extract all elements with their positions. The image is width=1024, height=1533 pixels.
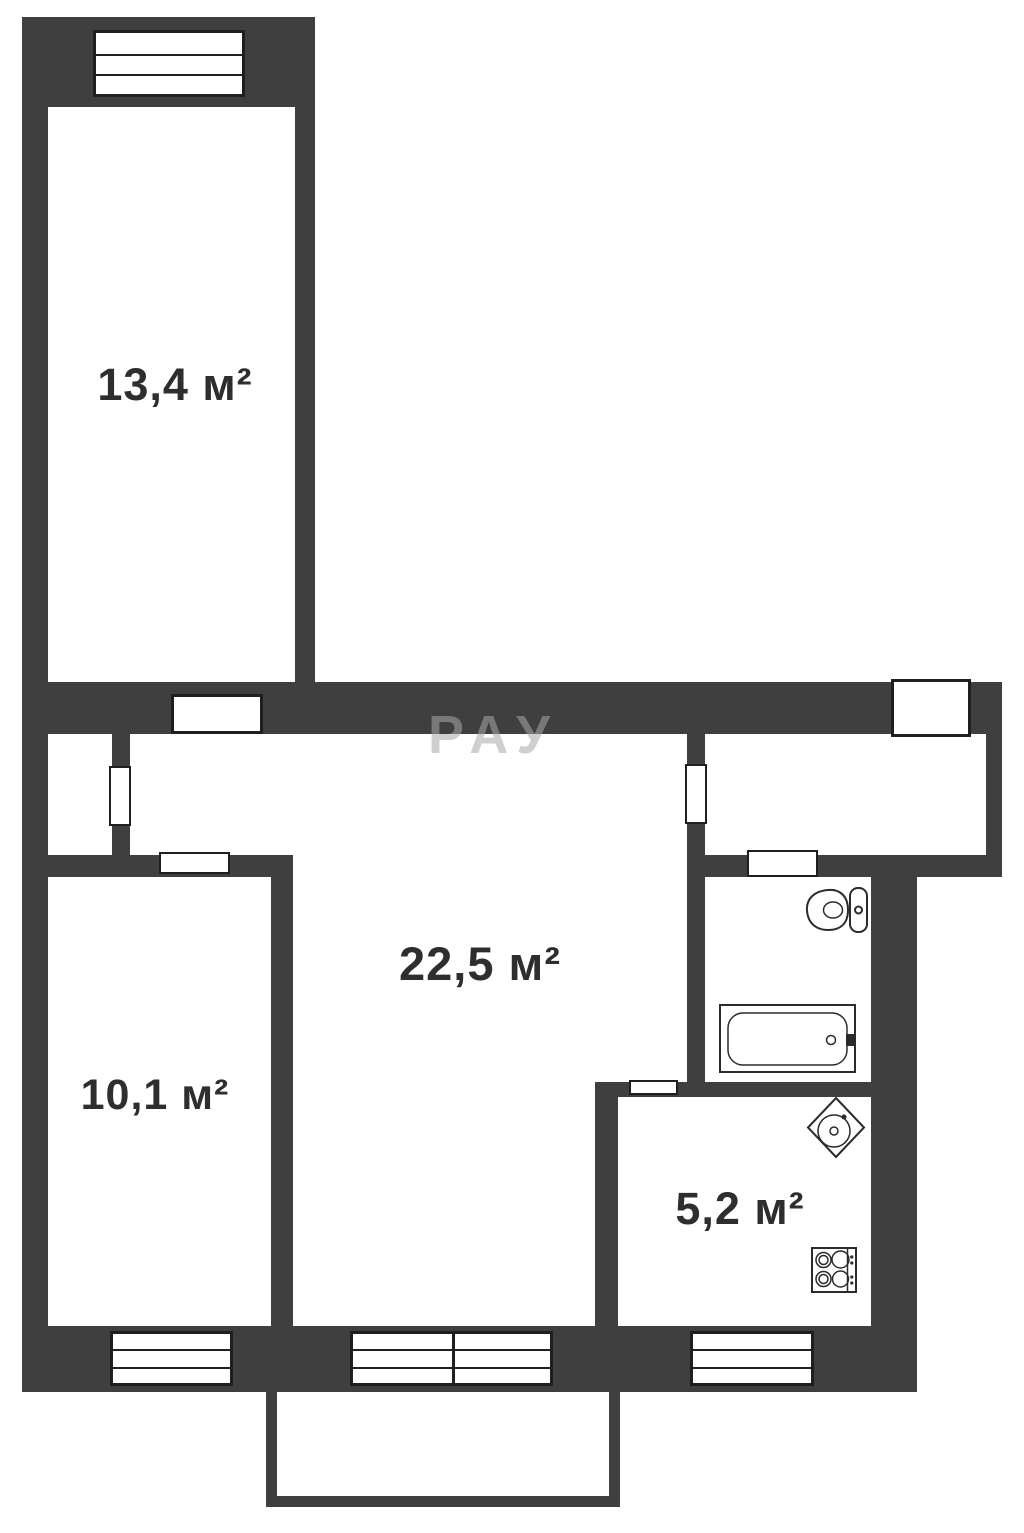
balcony-outline <box>266 1392 620 1507</box>
window-mullion <box>452 1334 455 1383</box>
wall-kitchen-left <box>595 1082 618 1331</box>
wall-hallway-right <box>986 682 1002 877</box>
window-divider <box>113 1367 230 1369</box>
window-kitchen <box>690 1331 814 1386</box>
watermark: РАУ <box>428 708 628 762</box>
door-kitchen <box>629 1080 678 1095</box>
window-bedroom-bottom <box>110 1331 233 1386</box>
window-divider <box>693 1349 811 1351</box>
entrance-door <box>891 679 971 737</box>
wall-right-exterior-lower <box>871 877 917 1392</box>
toilet-icon <box>804 884 870 936</box>
kitchen-sink-icon <box>806 1097 866 1159</box>
stove-icon <box>810 1246 858 1294</box>
window-living-double <box>350 1331 553 1386</box>
room-label-bedroom-bottom: 10,1 м² <box>55 1074 255 1117</box>
door-bedroom-top <box>171 694 263 734</box>
wall-bedroom-bottom-right <box>271 877 293 1331</box>
door-hallway <box>685 764 707 824</box>
window-divider <box>693 1367 811 1369</box>
door-bedroom-bottom <box>159 852 230 874</box>
floor-plan: 13,4 м² 22,5 м² 10,1 м² 5,2 м² РАУ <box>0 0 1024 1533</box>
window-divider <box>113 1349 230 1351</box>
window-bedroom-top <box>93 30 245 97</box>
room-label-kitchen: 5,2 м² <box>640 1186 840 1231</box>
room-label-bedroom-top: 13,4 м² <box>75 362 275 407</box>
door-closet <box>109 766 131 826</box>
door-bathroom <box>747 850 818 877</box>
window-divider <box>96 74 242 76</box>
wall-bedroom-top-right <box>295 17 315 733</box>
room-label-living: 22,5 м² <box>380 940 580 987</box>
wall-hallway-bottom <box>687 855 1002 877</box>
bathtub-icon <box>719 1004 857 1074</box>
wall-bedroom-bottom-top <box>22 855 293 877</box>
window-divider <box>96 54 242 56</box>
